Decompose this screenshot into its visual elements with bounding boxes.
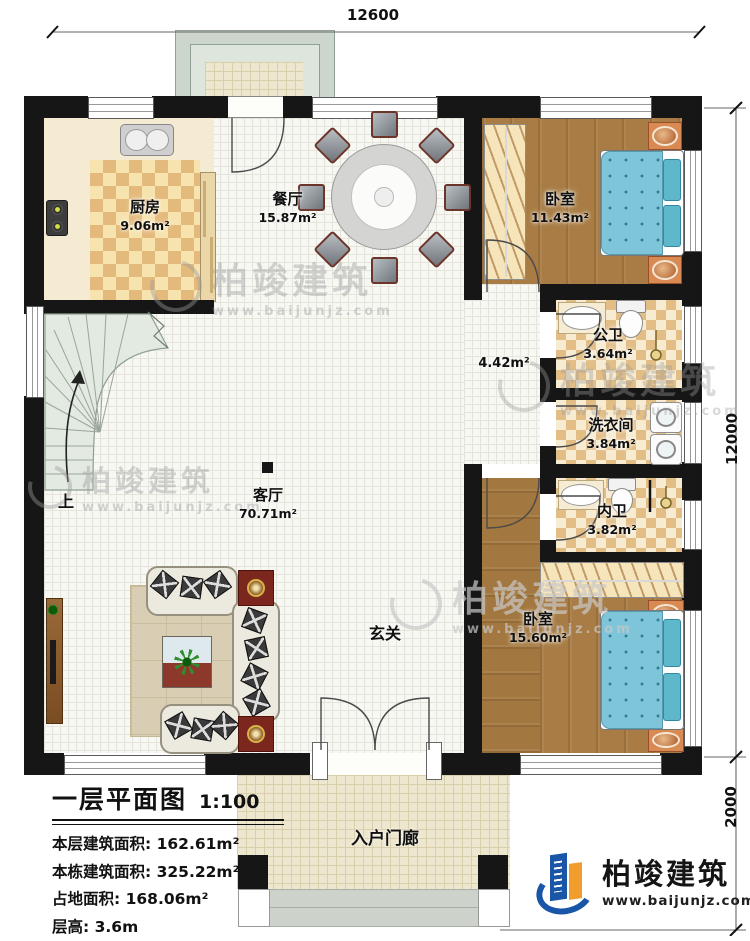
wall-top-4 xyxy=(436,96,540,118)
company-name: 柏竣建筑 xyxy=(602,859,750,889)
window-bedroom2-bottom xyxy=(520,755,662,775)
title-underline xyxy=(52,819,284,825)
wall-right-2 xyxy=(682,250,702,306)
plan-info-block: 一层平面图 1:100 本层建筑面积: 162.61m² 本栋建筑面积: 325… xyxy=(52,780,290,941)
dining-chair xyxy=(444,184,471,211)
dimension-right-lower: 2000 xyxy=(722,782,740,832)
label-kitchen: 厨房9.06m² xyxy=(95,198,195,234)
label-entry: 玄关 xyxy=(350,620,420,644)
label-laundry: 洗衣间3.84m² xyxy=(566,416,656,452)
wall-bottom-1 xyxy=(24,753,64,775)
wall-right-3 xyxy=(682,362,702,402)
wall-bath-left-3 xyxy=(540,446,556,464)
kitchen-pass-strip xyxy=(200,118,214,172)
wall-bottom-2 xyxy=(204,753,310,775)
label-hall-area: 4.42m² xyxy=(470,356,538,373)
wall-bedroom1-bottom-b xyxy=(540,284,682,300)
label-bedroom1: 卧室11.43m² xyxy=(515,190,605,226)
window-bedroom1-right xyxy=(684,150,702,252)
entry-threshold xyxy=(310,753,440,775)
side-table-top xyxy=(238,570,274,606)
label-public-bath: 公卫3.64m² xyxy=(568,326,648,362)
wall-top-3 xyxy=(283,96,312,118)
dimension-top: 12600 xyxy=(338,6,408,24)
coffee-table xyxy=(162,636,212,688)
company-logo-icon xyxy=(536,852,592,916)
hallway-floor xyxy=(464,284,540,464)
wall-left-1 xyxy=(24,96,44,306)
wall-bath-left-1 xyxy=(540,300,556,312)
label-porch: 入户门廊 xyxy=(318,824,452,849)
floor-plan-page: { "dimensions": { "top": "12600", "right… xyxy=(0,0,750,936)
dining-chair xyxy=(371,257,398,284)
label-bedroom2: 卧室15.60m² xyxy=(492,610,584,646)
bedroom2-nightstand-bottom xyxy=(648,728,684,752)
window-public-bath xyxy=(684,306,702,364)
plan-scale: 1:100 xyxy=(199,791,259,813)
wall-right-1 xyxy=(682,96,702,150)
label-living: 客厅70.71m² xyxy=(222,486,314,522)
wall-privbath-left-1 xyxy=(540,478,556,494)
side-table-bottom xyxy=(238,716,274,752)
entry-door-jamb-right xyxy=(426,742,442,780)
label-dining: 餐厅15.87m² xyxy=(240,190,335,226)
dimension-right-upper: 12000 xyxy=(723,409,741,469)
kitchen-sink xyxy=(120,124,174,156)
window-bedroom1-top xyxy=(540,97,652,119)
label-private-bath: 内卫3.82m² xyxy=(572,502,652,538)
kitchen-sliding-door xyxy=(200,172,216,302)
sofa-top xyxy=(146,566,238,616)
kitchen-stove xyxy=(46,200,68,236)
info-row-building-area: 本栋建筑面积: 325.22m² xyxy=(52,859,290,887)
rear-porch-floor xyxy=(205,62,303,96)
label-stairs-up: 上 xyxy=(52,488,80,512)
bedroom2-wardrobe xyxy=(540,562,684,598)
wall-corridor-top-b xyxy=(540,464,682,478)
porch-step-band xyxy=(268,889,480,927)
window-kitchen xyxy=(88,97,154,119)
plan-title-row: 一层平面图 1:100 xyxy=(52,780,290,816)
info-row-floor-height: 层高: 3.6m xyxy=(52,914,290,941)
tv-screen xyxy=(50,640,56,684)
info-row-floor-area: 本层建筑面积: 162.61m² xyxy=(52,831,290,859)
wall-living-corridor xyxy=(464,464,482,753)
wall-bottom-3 xyxy=(440,753,520,775)
entry-door-jamb-left xyxy=(312,742,328,780)
wall-right-4 xyxy=(682,462,702,500)
wall-top-2 xyxy=(152,96,228,118)
column-marker xyxy=(262,462,273,473)
sofa-bottom xyxy=(160,704,240,754)
info-row-footprint-area: 占地面积: 168.06m² xyxy=(52,886,290,914)
wall-bottom-4 xyxy=(660,753,702,775)
wall-privbath-bottom xyxy=(540,552,682,562)
wall-right-5 xyxy=(682,548,702,610)
window-bedroom2-right xyxy=(684,610,702,747)
wall-bedroom1-bottom-a xyxy=(464,284,482,300)
porch-pillar-right xyxy=(478,855,508,889)
window-laundry xyxy=(684,402,702,464)
wall-pubbath-laundry xyxy=(540,388,682,400)
sofa-right xyxy=(232,600,280,722)
bedroom2-bed xyxy=(600,610,684,730)
dining-table-center xyxy=(374,187,394,207)
company-logo: 柏竣建筑 www.baijunjz.com xyxy=(536,852,750,916)
company-website: www.baijunjz.com xyxy=(602,893,750,909)
porch-pillar-base-right xyxy=(478,889,510,927)
bedroom1-nightstand-bottom xyxy=(648,256,682,284)
window-stairs xyxy=(26,306,44,398)
wall-kitchen-bottom xyxy=(24,300,214,314)
window-private-bath xyxy=(684,500,702,550)
dining-chair xyxy=(371,111,398,138)
bedroom1-bed xyxy=(600,150,684,256)
window-living-bottom xyxy=(64,755,206,775)
porch-step-line xyxy=(268,907,478,908)
rear-door-threshold xyxy=(228,96,283,118)
wall-privbath-left-2 xyxy=(540,540,556,552)
plan-title: 一层平面图 xyxy=(52,780,187,816)
wall-left-2 xyxy=(24,396,44,775)
bedroom1-nightstand-top xyxy=(648,122,682,150)
cabinet-plant xyxy=(47,604,59,616)
